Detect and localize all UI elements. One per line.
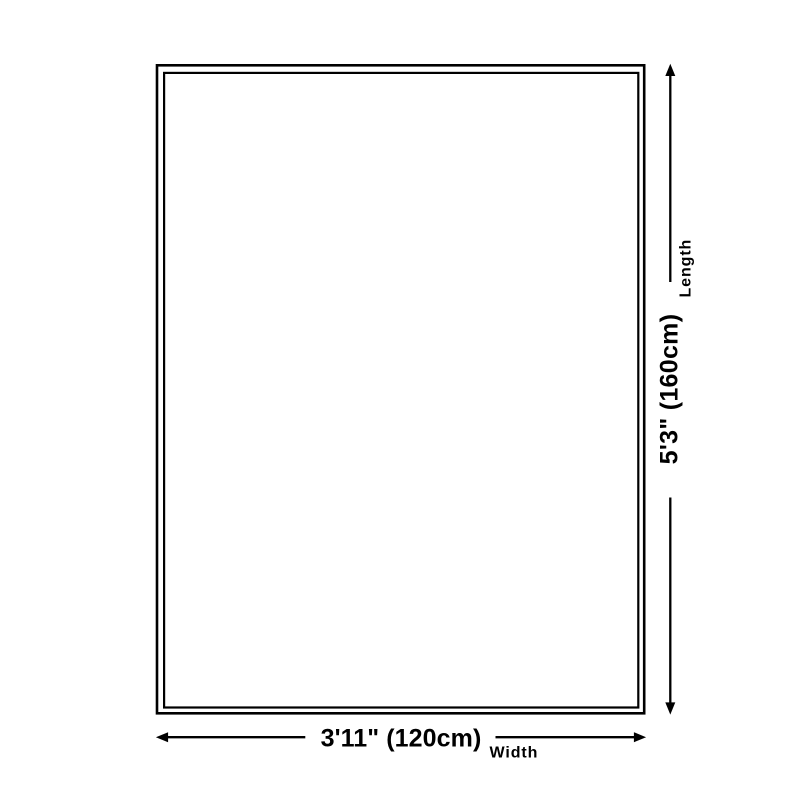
svg-text:Width: Width <box>490 745 539 762</box>
svg-text:Length: Length <box>678 239 695 298</box>
svg-text:3'11" (120cm): 3'11" (120cm) <box>321 725 482 753</box>
svg-text:5'3" (160cm): 5'3" (160cm) <box>656 314 684 465</box>
